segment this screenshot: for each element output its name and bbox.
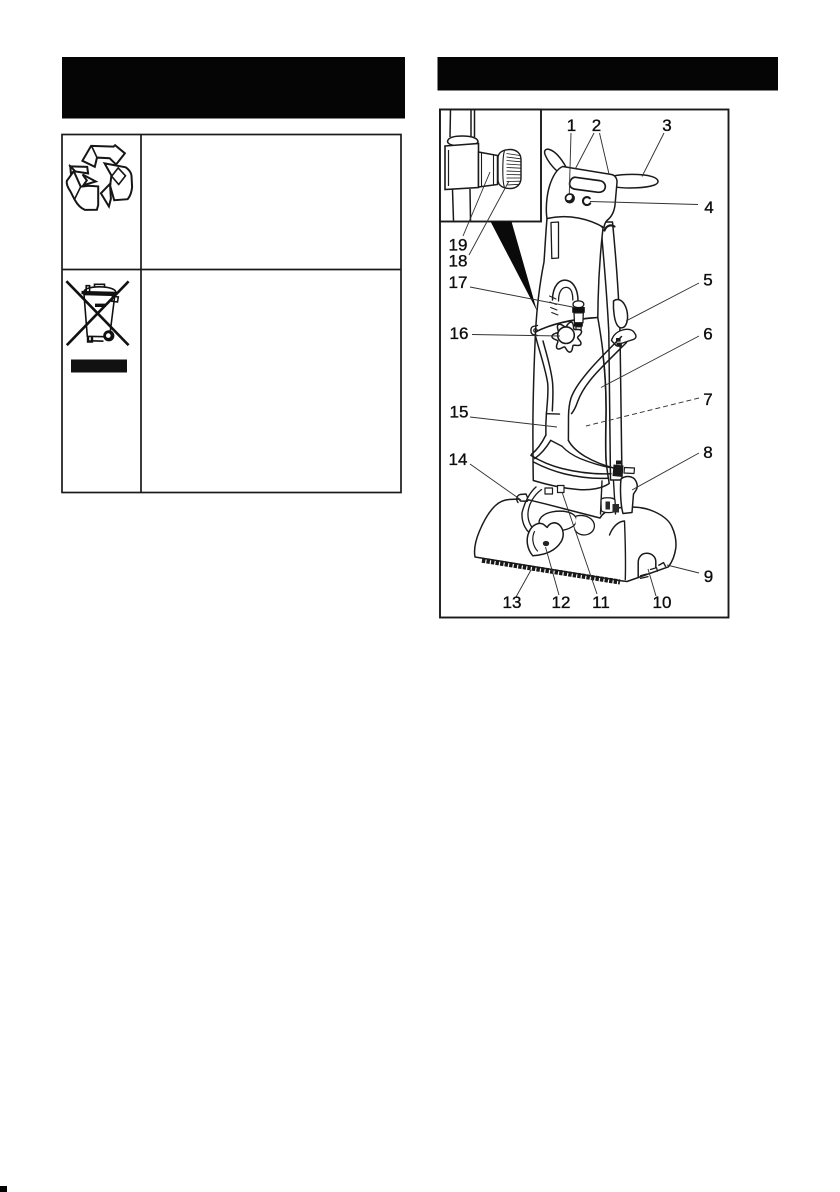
svg-text:15: 15 (450, 403, 469, 422)
svg-text:7: 7 (703, 390, 712, 409)
svg-text:17: 17 (449, 273, 468, 292)
svg-text:16: 16 (450, 324, 469, 343)
svg-text:3: 3 (662, 116, 671, 135)
svg-text:1: 1 (567, 116, 576, 135)
svg-text:13: 13 (503, 593, 522, 612)
svg-text:10: 10 (653, 593, 672, 612)
svg-text:5: 5 (703, 271, 712, 290)
svg-text:11: 11 (592, 593, 610, 612)
svg-text:14: 14 (449, 450, 468, 469)
svg-text:6: 6 (703, 325, 712, 344)
svg-text:2: 2 (592, 116, 601, 135)
svg-text:4: 4 (704, 198, 713, 217)
svg-text:8: 8 (703, 443, 712, 462)
svg-text:19: 19 (449, 236, 468, 255)
svg-text:9: 9 (704, 567, 713, 586)
svg-text:12: 12 (552, 593, 571, 612)
